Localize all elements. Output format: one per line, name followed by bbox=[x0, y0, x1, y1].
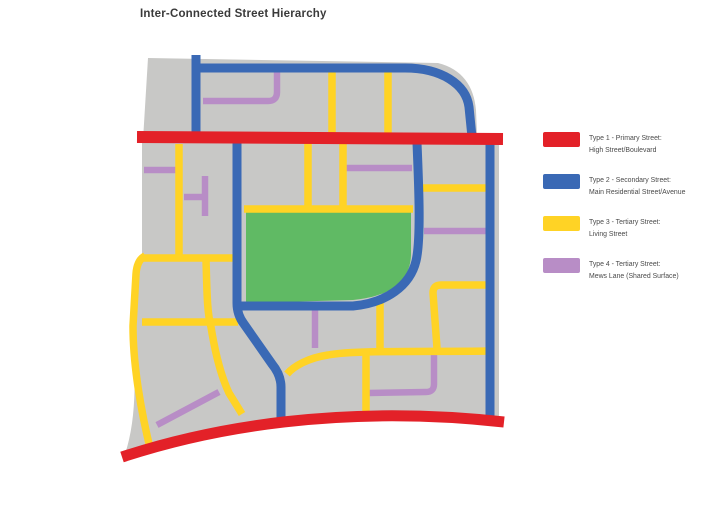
legend-label-living-line1: Type 3 - Tertiary Street: bbox=[589, 217, 661, 229]
street-hierarchy-diagram: Inter-Connected Street Hierarchy bbox=[0, 0, 720, 509]
legend-item-mews: Type 4 - Tertiary Street: Mews Lane (Sha… bbox=[543, 258, 713, 282]
legend-label-primary-line1: Type 1 - Primary Street: bbox=[589, 133, 662, 145]
legend-swatch-primary bbox=[543, 132, 580, 147]
legend-swatch-secondary bbox=[543, 174, 580, 189]
legend: Type 1 - Primary Street: High Street/Bou… bbox=[543, 132, 713, 300]
legend-label-secondary-line2: Main Residential Street/Avenue bbox=[589, 187, 685, 199]
legend-item-primary: Type 1 - Primary Street: High Street/Bou… bbox=[543, 132, 713, 156]
legend-item-secondary: Type 2 - Secondary Street: Main Resident… bbox=[543, 174, 713, 198]
legend-swatch-living bbox=[543, 216, 580, 231]
legend-label-living-line2: Living Street bbox=[589, 229, 661, 241]
legend-label-mews-line1: Type 4 - Tertiary Street: bbox=[589, 259, 679, 271]
park-area bbox=[246, 212, 411, 303]
legend-item-living: Type 3 - Tertiary Street: Living Street bbox=[543, 216, 713, 240]
legend-swatch-mews bbox=[543, 258, 580, 273]
legend-label-mews-line2: Mews Lane (Shared Surface) bbox=[589, 271, 679, 283]
legend-label-primary-line2: High Street/Boulevard bbox=[589, 145, 662, 157]
legend-label-secondary-line1: Type 2 - Secondary Street: bbox=[589, 175, 685, 187]
